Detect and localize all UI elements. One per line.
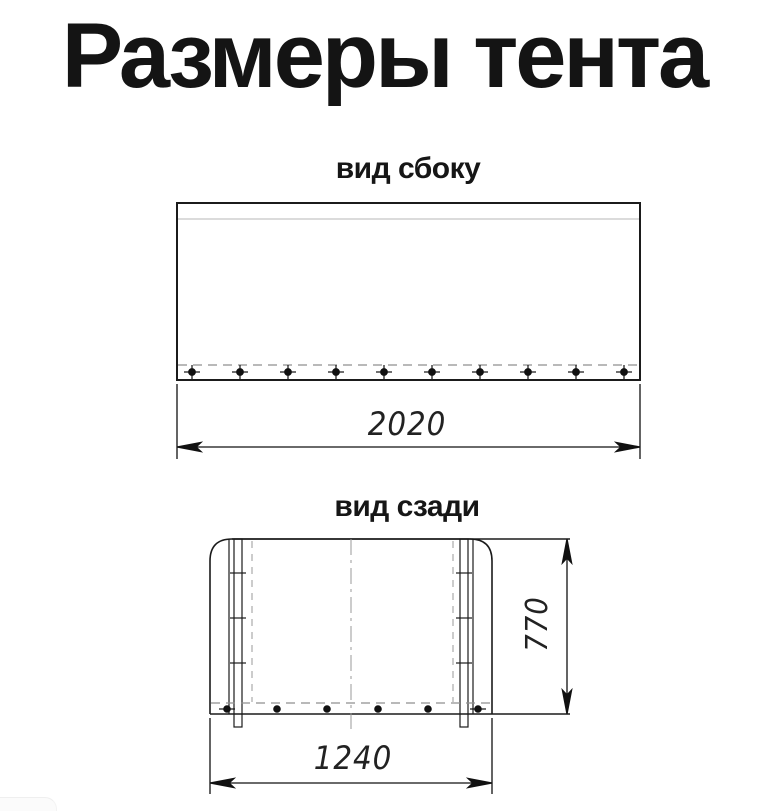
side-width-dimension-label: 2020 — [352, 408, 462, 440]
rivet-icon — [425, 706, 431, 712]
rivet-icon — [274, 706, 280, 712]
rivet-icon — [324, 706, 330, 712]
rear-height-dimension-label: 770 — [523, 569, 553, 679]
rear-view-title: вид сзади — [247, 490, 567, 524]
rear-height-dimension — [562, 539, 571, 714]
corner-artifact — [0, 797, 57, 811]
rear-width-dimension-label: 1240 — [298, 742, 408, 774]
tent-dimensions-diagram: Размеры тента вид сбоку — [0, 0, 768, 811]
tarp-side-outline — [177, 203, 640, 380]
page-title: Размеры тента — [0, 10, 768, 104]
rivet-icon — [375, 706, 381, 712]
side-view-title: вид сбоку — [248, 152, 568, 186]
